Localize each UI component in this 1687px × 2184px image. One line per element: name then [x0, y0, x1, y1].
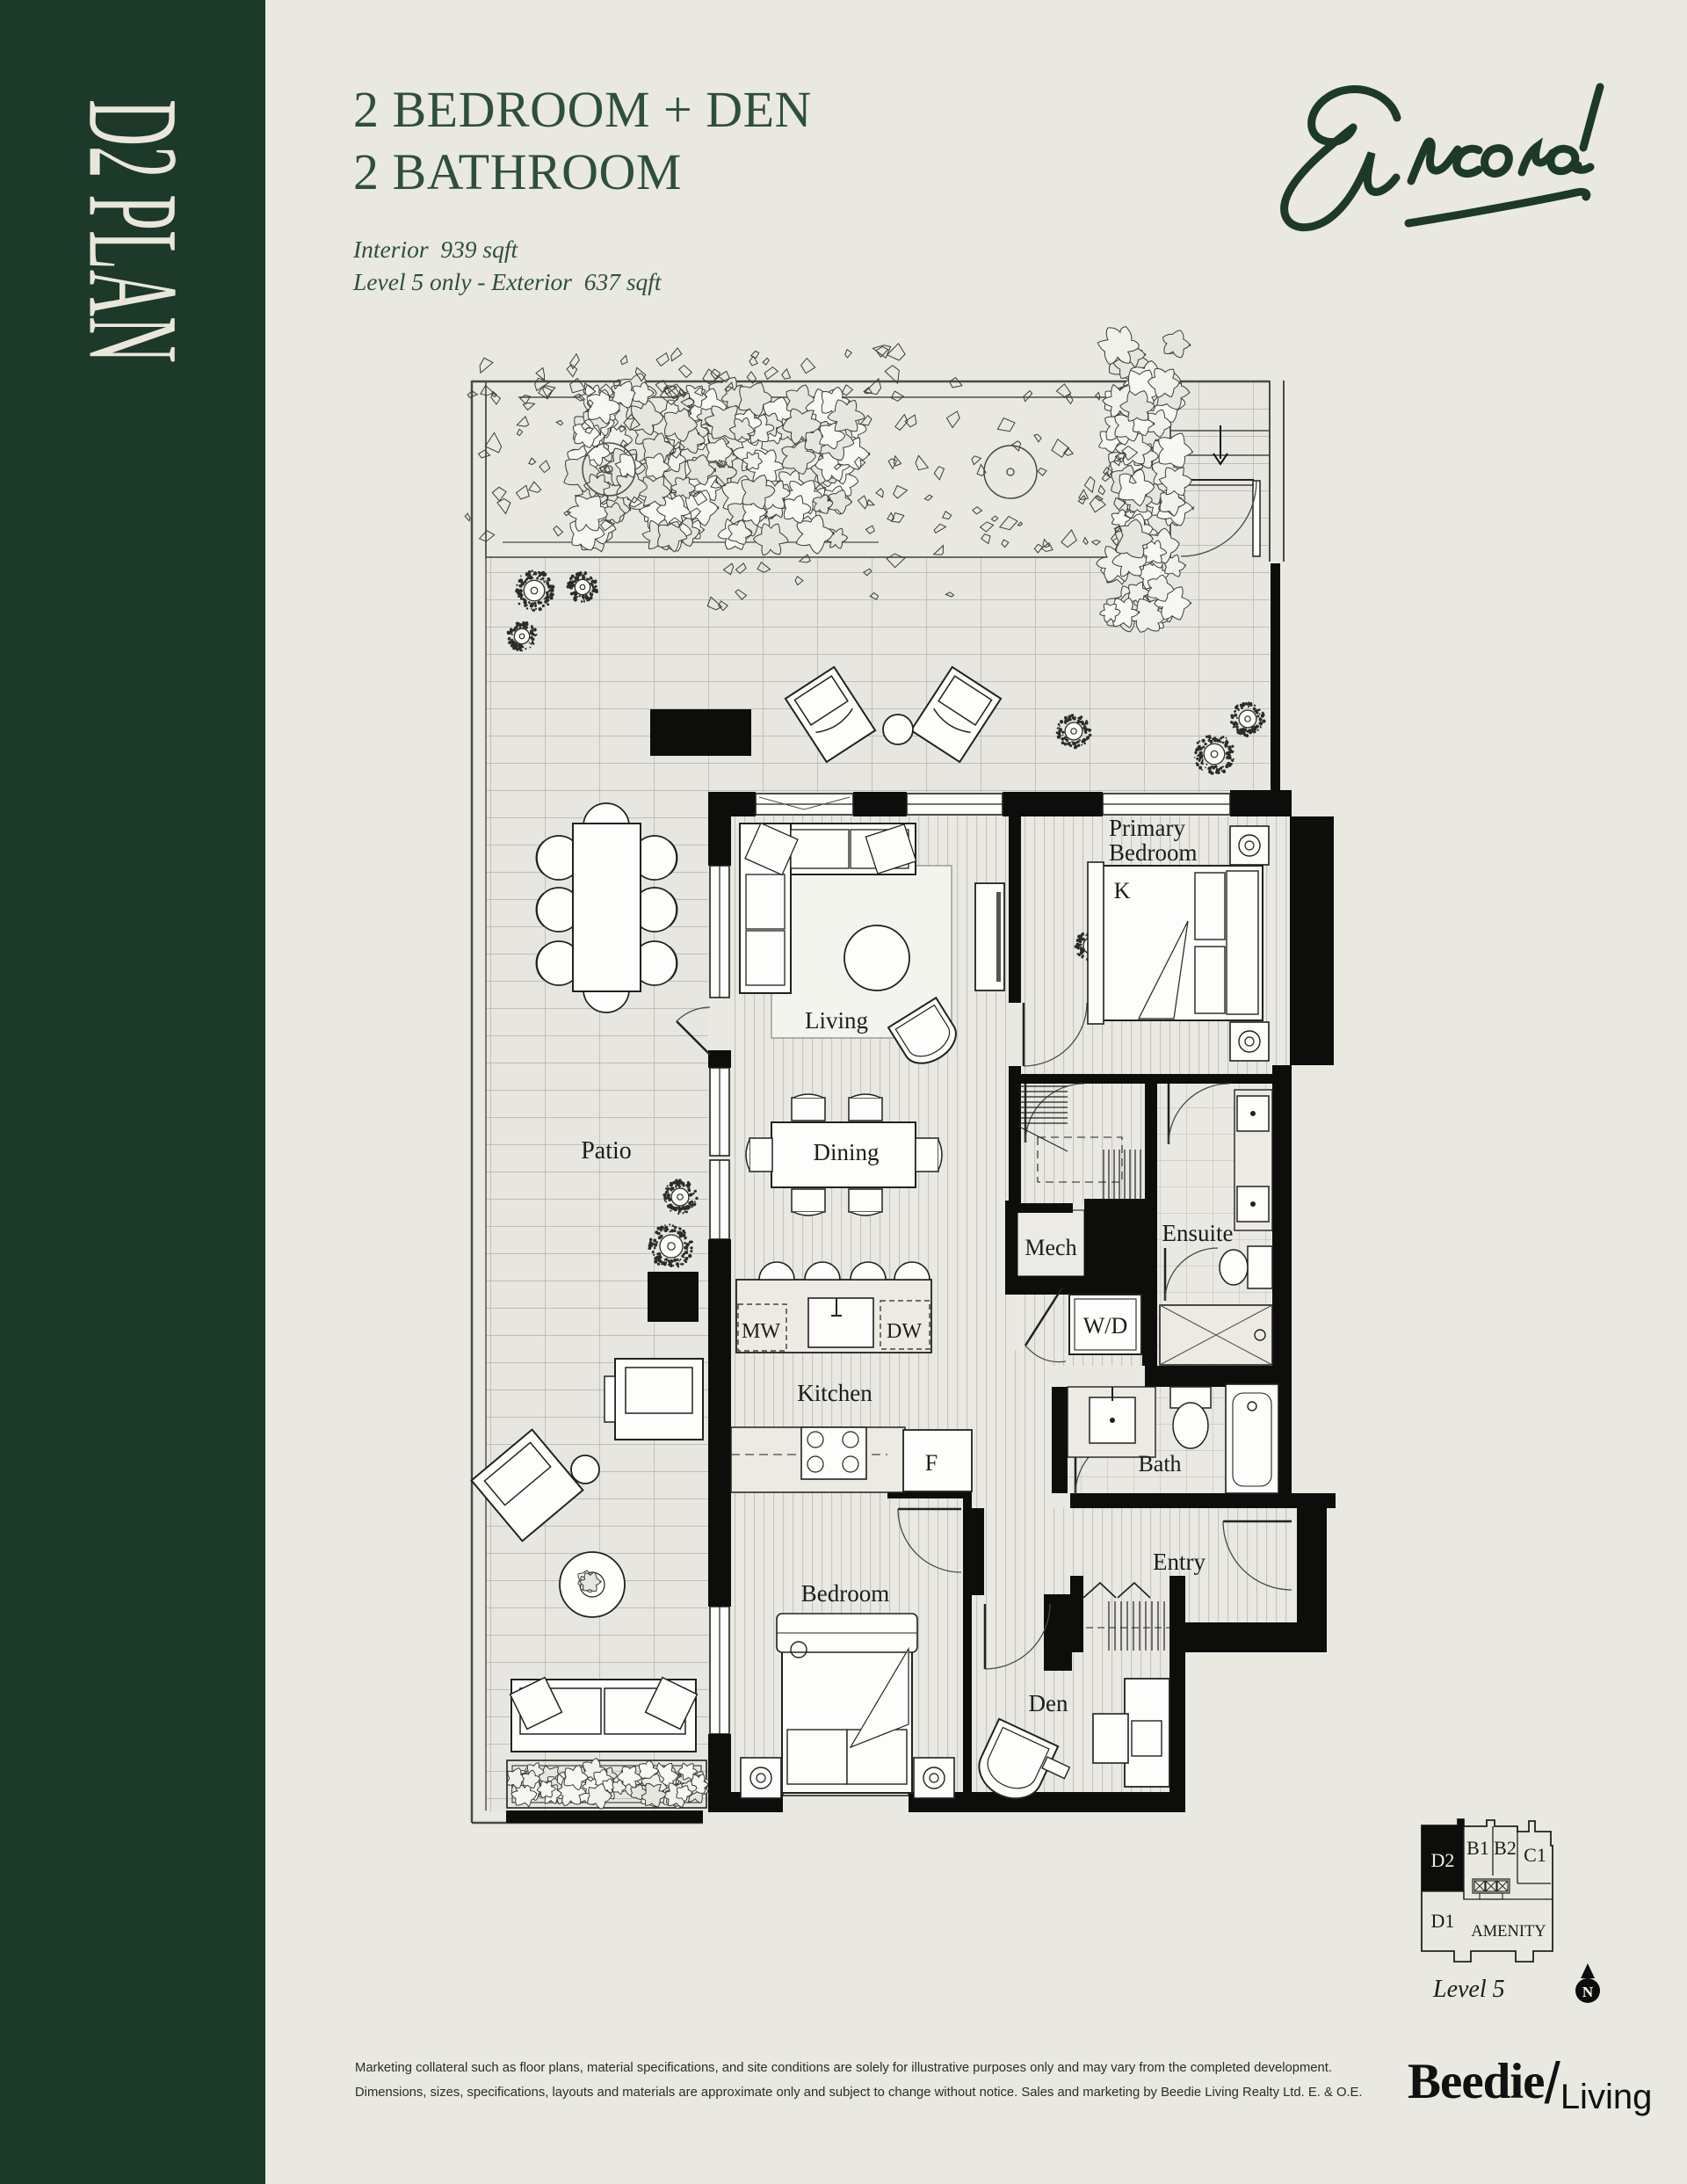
svg-text:D1: D1: [1431, 1910, 1455, 1932]
svg-text:B1: B1: [1466, 1837, 1489, 1859]
svg-text:Dining: Dining: [813, 1139, 879, 1165]
svg-text:Bedroom: Bedroom: [1109, 839, 1198, 866]
svg-text:Bath: Bath: [1138, 1451, 1181, 1477]
svg-text:C1: C1: [1524, 1844, 1546, 1866]
svg-text:DW: DW: [887, 1320, 922, 1343]
svg-text:Den: Den: [1029, 1690, 1068, 1716]
svg-text:D2: D2: [1431, 1849, 1455, 1871]
svg-text:Bedroom: Bedroom: [801, 1580, 890, 1607]
svg-text:Patio: Patio: [581, 1137, 632, 1165]
svg-text:Mech: Mech: [1025, 1235, 1076, 1260]
svg-text:Living: Living: [805, 1007, 868, 1034]
svg-text:MW: MW: [742, 1320, 780, 1343]
svg-text:N: N: [1582, 1984, 1594, 2000]
svg-text:AMENITY: AMENITY: [1471, 1923, 1546, 1941]
svg-text:W/D: W/D: [1083, 1313, 1128, 1339]
svg-text:B2: B2: [1494, 1837, 1517, 1859]
svg-text:Primary: Primary: [1109, 815, 1185, 841]
svg-text:Entry: Entry: [1153, 1549, 1206, 1575]
svg-text:Kitchen: Kitchen: [797, 1380, 872, 1406]
svg-text:K: K: [1114, 878, 1131, 903]
svg-text:Ensuite: Ensuite: [1162, 1220, 1234, 1246]
svg-text:F: F: [925, 1450, 938, 1476]
svg-text:Level 5: Level 5: [1432, 1976, 1505, 2003]
